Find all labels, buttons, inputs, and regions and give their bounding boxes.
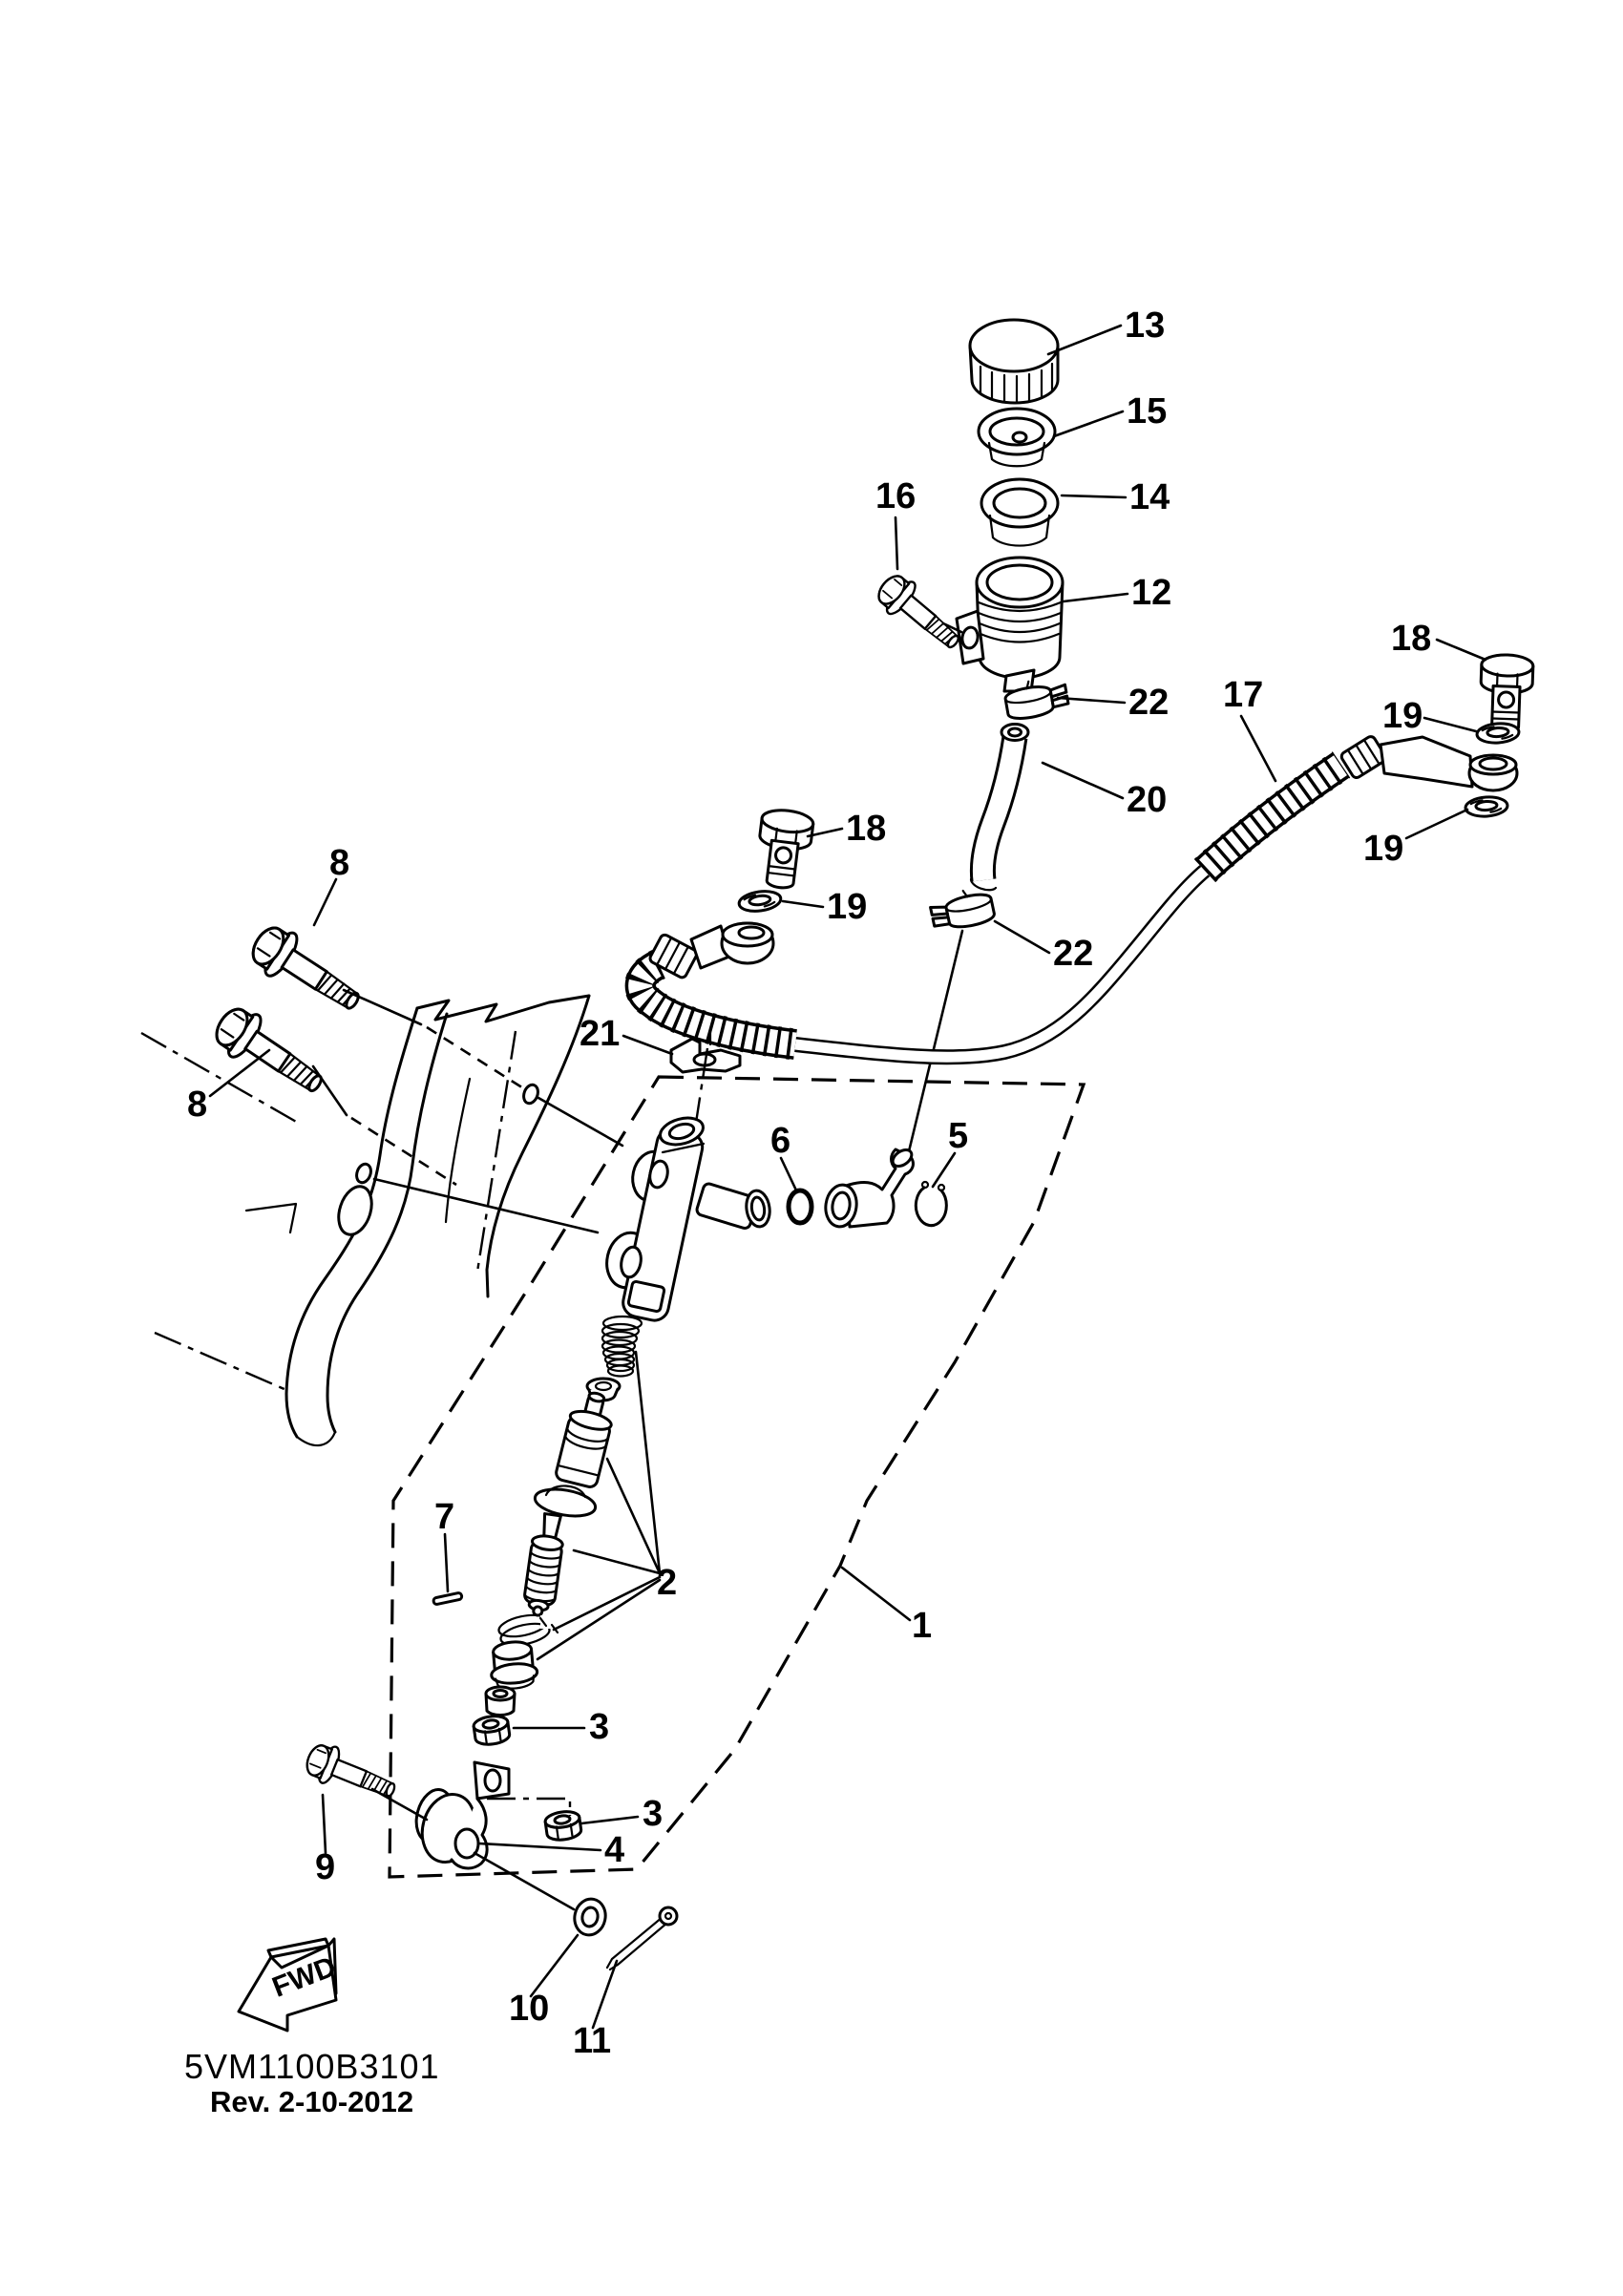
- callout-label: 10: [509, 1989, 549, 2029]
- callout-label: 20: [1127, 780, 1167, 820]
- callout-8-lower: 8: [187, 1050, 269, 1125]
- callout-6: 6: [770, 1121, 797, 1192]
- revision-label: Rev. 2-10-2012: [210, 2085, 413, 2118]
- spring: [602, 1317, 642, 1377]
- callout-label: 8: [187, 1085, 207, 1125]
- callout-22-upper: 22: [1058, 683, 1169, 723]
- callout-label: 16: [875, 476, 916, 516]
- part-18-union-bolt-left: [754, 808, 814, 891]
- callout-20: 20: [1043, 763, 1167, 820]
- part-2-piston-kit: [486, 1317, 642, 1715]
- callout-label: 14: [1129, 477, 1170, 517]
- callout-3-lower: 3: [581, 1794, 663, 1834]
- callout-7: 7: [434, 1497, 454, 1591]
- callout-label: 1: [912, 1606, 932, 1646]
- part-16-reservoir-bolt: [872, 568, 969, 659]
- callout-10: 10: [509, 1935, 578, 2029]
- elbow-joint: [823, 1147, 915, 1229]
- callout-label: 6: [770, 1121, 790, 1161]
- callout-label: 19: [1382, 696, 1423, 736]
- callout-label: 18: [1391, 619, 1431, 659]
- part-19-washer-right-upper: [1476, 722, 1519, 744]
- callout-18-right: 18: [1391, 619, 1486, 660]
- callout-label: 19: [1363, 829, 1403, 869]
- part-22-clamp-lower: [909, 885, 996, 1151]
- callout-label: 5: [948, 1116, 968, 1156]
- callout-label: 4: [604, 1830, 624, 1870]
- callout-16: 16: [875, 476, 916, 569]
- drawing-code: 5VM1100B3101: [184, 2047, 440, 2086]
- part-12-reservoir: [957, 558, 1063, 705]
- callout-19-right-lower: 19: [1363, 810, 1467, 869]
- fwd-arrow: FWD: [239, 1939, 340, 2031]
- part-8-mount-bolt-upper: [244, 918, 622, 1146]
- callout-19-left: 19: [783, 887, 867, 927]
- boot-collar: [489, 1640, 538, 1691]
- piston: [555, 1388, 618, 1488]
- callout-label: 7: [434, 1497, 454, 1537]
- callout-18-left: 18: [808, 809, 886, 849]
- callout-label: 22: [1128, 683, 1169, 723]
- push-rod: [522, 1512, 567, 1617]
- callout-label: 22: [1053, 934, 1093, 974]
- callout-11: 11: [573, 1961, 617, 2061]
- callout-label: 11: [573, 2021, 611, 2061]
- part-4-clevis-joint: [411, 1762, 509, 1868]
- callout-label: 15: [1127, 391, 1167, 432]
- parts-diagram-page: 13 15 14 16 12 22 17 20 18 19 19 18: [0, 0, 1623, 2296]
- callout-1: 1: [842, 1568, 932, 1646]
- parts-diagram-canvas: 13 15 14 16 12 22 17 20 18 19 19 18: [0, 0, 1623, 2296]
- callout-label: 17: [1223, 675, 1263, 715]
- callout-9: 9: [315, 1795, 335, 1887]
- part-9-clevis-bolt: [302, 1738, 427, 1820]
- callout-label: 19: [827, 887, 867, 927]
- callout-8-upper: 8: [314, 843, 349, 925]
- part-3-nut-upper: [473, 1715, 511, 1747]
- callout-label: 13: [1125, 305, 1165, 346]
- callout-label: 12: [1131, 573, 1171, 613]
- callout-label: 18: [846, 809, 886, 849]
- callout-label: 3: [643, 1794, 663, 1834]
- callout-label: 8: [329, 843, 349, 883]
- part-13-reservoir-cap: [970, 320, 1058, 403]
- frame-outline: [141, 996, 589, 1445]
- part-14-diaphragm: [981, 479, 1058, 546]
- part-6-o-ring: [789, 1190, 811, 1223]
- callout-3-upper: 3: [514, 1707, 609, 1747]
- callout-label: 3: [589, 1707, 609, 1747]
- part-10-plain-washer: [474, 1853, 609, 1938]
- part-19-washer-right-lower: [1465, 795, 1507, 817]
- callout-14: 14: [1062, 477, 1170, 517]
- part-19-washer-left: [738, 889, 782, 914]
- callout-label: 21: [580, 1014, 620, 1054]
- callout-label: 2: [657, 1563, 677, 1603]
- part-20-reservoir-tube: [971, 725, 1028, 891]
- master-cylinder-body: [601, 1113, 771, 1322]
- callout-19-right-upper: 19: [1382, 696, 1476, 736]
- part-15-diaphragm-plate: [979, 409, 1055, 466]
- part-18-union-bolt-right: [1479, 654, 1533, 733]
- part-5-circlip: [916, 1182, 946, 1226]
- rod-flange: [533, 1485, 598, 1521]
- callout-5: 5: [933, 1116, 968, 1187]
- part-3-nut-lower: [487, 1799, 582, 1842]
- callout-17: 17: [1223, 675, 1275, 781]
- part-7-pin: [432, 1592, 462, 1605]
- callout-12: 12: [1064, 573, 1171, 613]
- callout-label: 9: [315, 1847, 335, 1887]
- bushing: [486, 1687, 515, 1715]
- callout-13: 13: [1048, 305, 1165, 354]
- callout-22-lower: 22: [995, 921, 1093, 974]
- callout-15: 15: [1054, 391, 1167, 436]
